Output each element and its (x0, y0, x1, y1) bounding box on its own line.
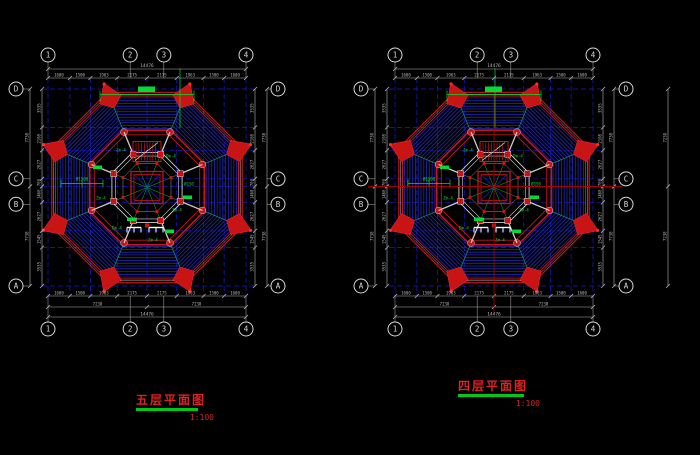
svg-text:1600: 1600 (230, 73, 240, 78)
svg-text:700: 700 (250, 178, 255, 186)
grid-bubble-col-3-top: 3 (157, 48, 171, 62)
svg-text:2627: 2627 (250, 159, 255, 169)
svg-text:3535: 3535 (382, 261, 387, 271)
title-underline-fourth (458, 394, 524, 397)
svg-text:7238: 7238 (663, 132, 668, 142)
svg-text:7238: 7238 (539, 302, 549, 307)
svg-text:1600: 1600 (54, 73, 64, 78)
svg-text:B: B (359, 200, 364, 209)
svg-text:D: D (14, 85, 19, 94)
svg-text:2: 2 (128, 325, 133, 334)
svg-text:2175: 2175 (157, 73, 167, 78)
svg-text:3535: 3535 (250, 261, 255, 271)
svg-text:Dm-4: Dm-4 (112, 226, 122, 231)
svg-text:1600: 1600 (577, 291, 587, 296)
floor-plan-fourth-floor-plan: Ø1500Zm-4Dm-4Ø150Zm-4Zm-4Dm-4Zm-41447616… (354, 48, 670, 336)
svg-text:700: 700 (598, 178, 603, 186)
grid-bubble-row-D-right: D (619, 82, 633, 96)
svg-text:C: C (359, 174, 364, 183)
grid-bubble-row-C-right: C (271, 172, 285, 186)
svg-text:3: 3 (509, 51, 514, 60)
svg-text:1460: 1460 (598, 189, 603, 199)
svg-text:D: D (624, 85, 629, 94)
plan-scale-fourth: 1:100 (458, 399, 540, 408)
grid-bubble-row-C-left: C (9, 172, 23, 186)
grid-bubble-col-4-bottom: 4 (586, 322, 600, 336)
svg-text:1460: 1460 (37, 189, 42, 199)
grid-bubble-row-A-left: A (354, 279, 368, 293)
svg-text:Zm-4: Zm-4 (148, 238, 158, 243)
svg-text:1963: 1963 (185, 291, 195, 296)
svg-text:Dm-4: Dm-4 (166, 154, 176, 159)
svg-text:1963: 1963 (446, 73, 456, 78)
svg-text:7238: 7238 (663, 231, 668, 241)
svg-text:1: 1 (393, 325, 398, 334)
svg-text:2175: 2175 (157, 291, 167, 296)
svg-text:A: A (624, 282, 629, 291)
svg-text:2: 2 (128, 51, 133, 60)
svg-text:1460: 1460 (250, 189, 255, 199)
svg-text:Ø150: Ø150 (184, 182, 194, 187)
svg-text:7738: 7738 (262, 132, 267, 142)
svg-text:1963: 1963 (99, 291, 109, 296)
svg-text:4: 4 (591, 325, 596, 334)
svg-text:C: C (14, 174, 19, 183)
grid-bubble-row-C-right: C (619, 172, 633, 186)
svg-text:2175: 2175 (474, 291, 484, 296)
svg-text:Ø150: Ø150 (531, 182, 541, 187)
grid-bubble-row-C-left: C (354, 172, 368, 186)
svg-text:3535: 3535 (37, 261, 42, 271)
grid-bubble-row-A-right: A (271, 279, 285, 293)
svg-text:2: 2 (475, 51, 480, 60)
svg-text:2108: 2108 (250, 133, 255, 143)
grid-bubble-col-1-bottom: 1 (388, 322, 402, 336)
grid-bubble-row-A-right: A (619, 279, 633, 293)
svg-text:2627: 2627 (598, 159, 603, 169)
title-block-fourth-floor: 四层平面图 1:100 (458, 380, 540, 408)
svg-text:Ø1500: Ø1500 (423, 177, 436, 182)
svg-text:1545: 1545 (250, 234, 255, 244)
svg-text:A: A (14, 282, 19, 291)
svg-text:3: 3 (162, 51, 167, 60)
svg-text:Dm-4: Dm-4 (513, 154, 523, 159)
svg-text:Zm-4: Zm-4 (116, 148, 126, 153)
svg-text:1963: 1963 (446, 291, 456, 296)
svg-text:2108: 2108 (37, 133, 42, 143)
svg-text:14476: 14476 (487, 312, 501, 318)
svg-text:14476: 14476 (140, 63, 154, 69)
svg-text:1500: 1500 (422, 291, 432, 296)
svg-text:Zm-4: Zm-4 (443, 196, 453, 201)
cad-drawing-area: Ø1500Zm-4Dm-4Ø150Zm-4Zm-4Dm-4Zm-41447616… (0, 0, 700, 455)
svg-text:Zm-4: Zm-4 (519, 208, 529, 213)
svg-text:2: 2 (475, 325, 480, 334)
svg-text:2175: 2175 (127, 291, 137, 296)
svg-text:7738: 7738 (25, 132, 30, 142)
svg-text:14476: 14476 (487, 63, 501, 69)
svg-text:D: D (276, 85, 281, 94)
grid-bubble-row-B-left: B (9, 197, 23, 211)
svg-text:4: 4 (591, 51, 596, 60)
svg-text:2627: 2627 (37, 159, 42, 169)
svg-text:4: 4 (244, 51, 249, 60)
svg-text:2108: 2108 (598, 133, 603, 143)
svg-text:2108: 2108 (382, 133, 387, 143)
svg-text:1: 1 (393, 51, 398, 60)
grid-bubble-col-2-bottom: 2 (123, 322, 137, 336)
svg-text:1963: 1963 (185, 73, 195, 78)
svg-text:Zm-4: Zm-4 (96, 196, 106, 201)
grid-bubble-col-4-top: 4 (239, 48, 253, 62)
floor-plan-fifth-floor-plan: Ø1500Zm-4Dm-4Ø150Zm-4Zm-4Dm-4Zm-41447616… (9, 48, 285, 336)
grid-bubble-col-3-bottom: 3 (157, 322, 171, 336)
svg-text:700: 700 (382, 178, 387, 186)
svg-text:1500: 1500 (422, 73, 432, 78)
title-underline-fifth (136, 408, 198, 411)
svg-text:Zm-4: Zm-4 (172, 208, 182, 213)
svg-text:1600: 1600 (230, 291, 240, 296)
svg-text:A: A (359, 282, 364, 291)
svg-text:1963: 1963 (532, 291, 542, 296)
svg-text:1460: 1460 (382, 189, 387, 199)
svg-text:3: 3 (509, 325, 514, 334)
svg-text:2175: 2175 (504, 73, 514, 78)
grid-bubble-col-1-bottom: 1 (41, 322, 55, 336)
grid-bubble-col-4-bottom: 4 (239, 322, 253, 336)
svg-text:B: B (14, 200, 19, 209)
plan-title-fifth-floor: 五层平面图 (136, 394, 214, 406)
svg-text:1500: 1500 (556, 291, 566, 296)
svg-text:7738: 7738 (370, 231, 375, 241)
svg-text:3535: 3535 (598, 103, 603, 113)
svg-text:2627: 2627 (382, 211, 387, 221)
svg-text:2175: 2175 (504, 291, 514, 296)
svg-text:7238: 7238 (93, 302, 103, 307)
svg-text:2627: 2627 (382, 159, 387, 169)
svg-text:700: 700 (37, 178, 42, 186)
grid-bubble-col-4-top: 4 (586, 48, 600, 62)
svg-text:2175: 2175 (127, 73, 137, 78)
grid-bubble-row-B-right: B (619, 197, 633, 211)
svg-text:1: 1 (46, 325, 51, 334)
svg-text:Dm-4: Dm-4 (459, 226, 469, 231)
svg-text:1500: 1500 (556, 73, 566, 78)
grid-bubble-row-B-right: B (271, 197, 285, 211)
svg-text:1545: 1545 (37, 234, 42, 244)
svg-text:C: C (624, 174, 629, 183)
svg-text:1545: 1545 (598, 234, 603, 244)
svg-text:1600: 1600 (577, 73, 587, 78)
svg-text:Ø1500: Ø1500 (76, 177, 89, 182)
title-block-fifth-floor: 五层平面图 1:100 (136, 394, 214, 422)
svg-text:3535: 3535 (250, 103, 255, 113)
svg-text:14476: 14476 (140, 312, 154, 318)
svg-text:1963: 1963 (99, 73, 109, 78)
svg-text:1600: 1600 (401, 291, 411, 296)
svg-text:B: B (276, 200, 281, 209)
svg-text:2627: 2627 (250, 211, 255, 221)
svg-text:Zm-4: Zm-4 (463, 148, 473, 153)
svg-text:1500: 1500 (209, 73, 219, 78)
svg-text:7238: 7238 (192, 302, 202, 307)
grid-bubble-row-D-left: D (9, 82, 23, 96)
grid-bubble-col-2-bottom: 2 (470, 322, 484, 336)
svg-text:Zm-4: Zm-4 (495, 238, 505, 243)
svg-text:3535: 3535 (598, 261, 603, 271)
grid-bubble-row-B-left: B (354, 197, 368, 211)
svg-text:A: A (276, 282, 281, 291)
grid-bubble-col-3-bottom: 3 (504, 322, 518, 336)
svg-text:2175: 2175 (474, 73, 484, 78)
svg-text:1963: 1963 (532, 73, 542, 78)
plan-title-fourth-floor: 四层平面图 (458, 380, 540, 392)
svg-text:1500: 1500 (75, 291, 85, 296)
svg-text:7738: 7738 (370, 132, 375, 142)
svg-text:7738: 7738 (262, 231, 267, 241)
grid-bubble-row-A-left: A (9, 279, 23, 293)
svg-text:1600: 1600 (54, 291, 64, 296)
svg-text:7238: 7238 (440, 302, 450, 307)
grid-bubble-row-D-right: D (271, 82, 285, 96)
grid-bubble-col-2-top: 2 (470, 48, 484, 62)
grid-bubble-row-D-left: D (354, 82, 368, 96)
grid-bubble-col-1-top: 1 (388, 48, 402, 62)
svg-text:7738: 7738 (609, 132, 614, 142)
svg-text:4: 4 (244, 325, 249, 334)
svg-text:D: D (359, 85, 364, 94)
svg-text:2627: 2627 (598, 211, 603, 221)
svg-text:C: C (276, 174, 281, 183)
grid-bubble-col-3-top: 3 (504, 48, 518, 62)
grid-bubble-col-1-top: 1 (41, 48, 55, 62)
svg-text:1545: 1545 (382, 234, 387, 244)
plan-scale-fifth: 1:100 (136, 413, 214, 422)
svg-text:7738: 7738 (25, 231, 30, 241)
svg-text:1500: 1500 (209, 291, 219, 296)
grid-bubble-col-2-top: 2 (123, 48, 137, 62)
svg-text:3535: 3535 (37, 103, 42, 113)
svg-text:1600: 1600 (401, 73, 411, 78)
svg-text:3: 3 (162, 325, 167, 334)
cad-canvas: Ø1500Zm-4Dm-4Ø150Zm-4Zm-4Dm-4Zm-41447616… (0, 0, 700, 455)
svg-text:1500: 1500 (75, 73, 85, 78)
svg-text:B: B (624, 200, 629, 209)
svg-text:2627: 2627 (37, 211, 42, 221)
svg-text:7738: 7738 (609, 231, 614, 241)
svg-text:3535: 3535 (382, 103, 387, 113)
svg-text:1: 1 (46, 51, 51, 60)
